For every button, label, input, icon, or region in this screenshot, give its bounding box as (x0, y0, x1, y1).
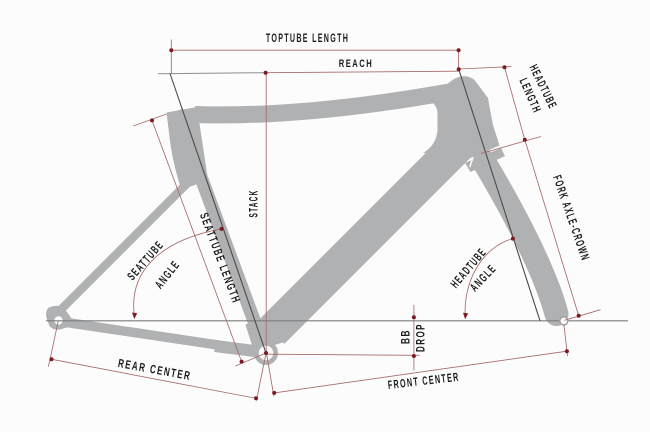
svg-text:STACK: STACK (247, 190, 261, 218)
svg-text:DROP: DROP (415, 323, 428, 352)
svg-text:BB: BB (400, 329, 413, 344)
svg-text:REACH: REACH (339, 58, 374, 71)
svg-text:TOPTUBE LENGTH: TOPTUBE LENGTH (266, 32, 349, 45)
